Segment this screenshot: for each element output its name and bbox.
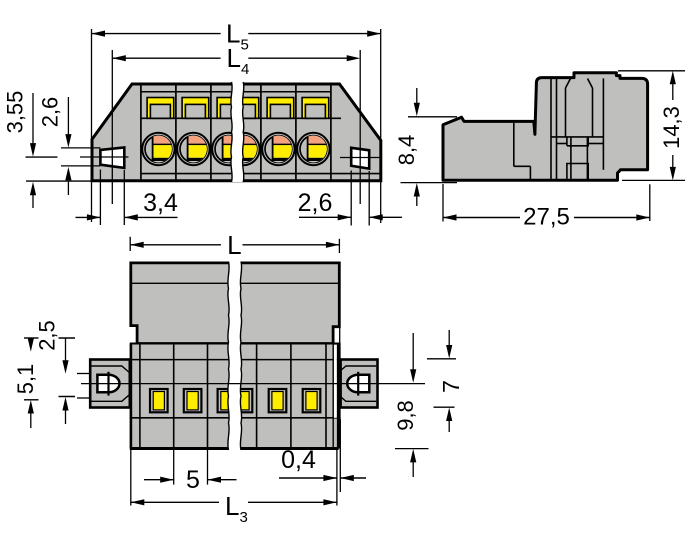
svg-text:9,8: 9,8 bbox=[393, 400, 418, 431]
svg-text:5: 5 bbox=[186, 466, 200, 494]
svg-text:14,3: 14,3 bbox=[659, 106, 684, 149]
svg-text:7: 7 bbox=[438, 380, 464, 393]
svg-text:L: L bbox=[227, 230, 241, 260]
svg-text:5,1: 5,1 bbox=[13, 364, 38, 395]
svg-text:0,4: 0,4 bbox=[281, 446, 316, 474]
svg-text:3,55: 3,55 bbox=[3, 91, 28, 134]
svg-text:2,6: 2,6 bbox=[298, 189, 333, 217]
svg-text:8,4: 8,4 bbox=[394, 135, 419, 166]
svg-text:2,6: 2,6 bbox=[38, 97, 63, 128]
svg-text:3,4: 3,4 bbox=[143, 189, 178, 217]
svg-text:2,5: 2,5 bbox=[35, 320, 60, 351]
svg-text:27,5: 27,5 bbox=[523, 204, 570, 231]
